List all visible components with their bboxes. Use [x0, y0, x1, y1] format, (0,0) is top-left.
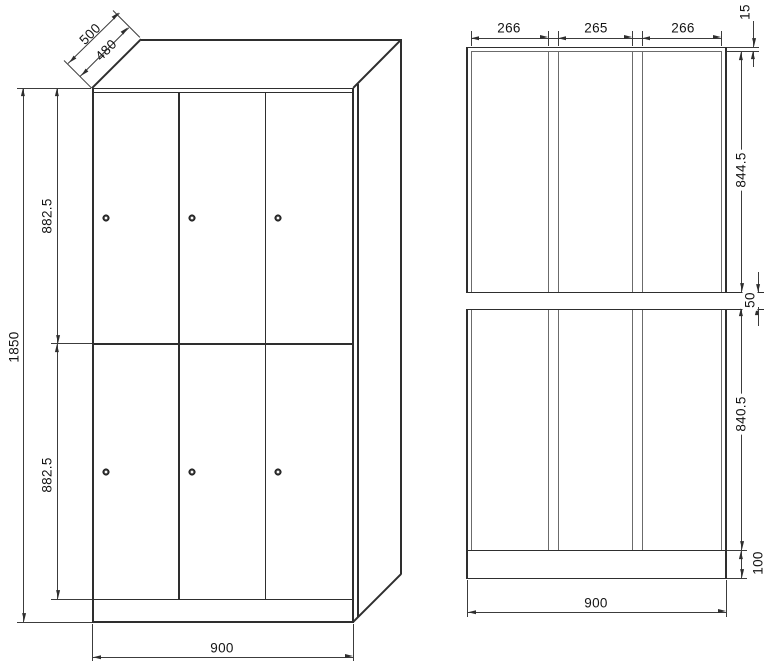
arrowhead — [56, 590, 60, 598]
object-line — [725, 47, 727, 579]
dim-label-height-total: 1850 — [7, 331, 22, 362]
object-line — [352, 39, 401, 89]
arrowhead — [22, 613, 26, 621]
extension-line — [548, 31, 549, 46]
arrowhead — [713, 35, 721, 39]
dim-label-width: 900 — [210, 641, 233, 656]
dim-label-width: 900 — [584, 596, 607, 611]
arrowhead — [718, 609, 726, 613]
arrowhead — [740, 569, 744, 577]
object-line — [400, 39, 402, 574]
extension-line — [727, 47, 759, 48]
technical-drawing: 500 480 1850 882.5 882.5 900 — [0, 0, 776, 672]
arrowhead — [740, 541, 744, 549]
extension-line — [726, 580, 727, 617]
object-line — [352, 573, 401, 622]
object-line — [466, 47, 468, 579]
arrowhead — [468, 611, 476, 615]
arrowhead — [642, 37, 650, 41]
dimension-line — [471, 38, 721, 39]
extension-line — [64, 60, 92, 88]
arrowhead — [750, 51, 754, 59]
object-line — [466, 47, 726, 49]
lock-knob — [188, 214, 196, 222]
dim-label-top-frame: 15 — [738, 4, 753, 20]
dim-label-lower-door: 840.5 — [734, 393, 749, 434]
object-line — [92, 88, 94, 623]
arrowhead — [345, 654, 353, 658]
dim-label-lower-door: 882.5 — [40, 457, 55, 492]
object-line — [92, 621, 353, 623]
extension-line — [632, 31, 633, 46]
arrowhead — [752, 38, 756, 46]
dimension-line — [467, 612, 726, 613]
arrowhead — [540, 35, 548, 39]
arrowhead — [54, 344, 58, 352]
arrowhead — [20, 88, 24, 96]
dim-label-door2-width: 265 — [584, 21, 607, 36]
extension-line — [51, 599, 92, 600]
extension-line — [721, 31, 722, 46]
object-line — [92, 599, 353, 601]
arrowhead — [54, 88, 58, 96]
arrowhead — [738, 52, 742, 60]
lock-knob — [188, 468, 196, 476]
dim-label-door1-width: 266 — [497, 21, 520, 36]
arrowhead — [738, 551, 742, 559]
dim-label-door3-width: 266 — [671, 21, 694, 36]
dim-label-mid-band: 50 — [743, 289, 758, 311]
arrowhead — [471, 37, 479, 41]
arrowhead — [93, 655, 101, 659]
lock-knob — [274, 214, 282, 222]
object-line — [141, 39, 402, 41]
dim-label-plinth: 100 — [751, 551, 766, 574]
lock-knob — [102, 468, 110, 476]
arrowhead — [121, 26, 130, 34]
dimension-line — [23, 88, 24, 623]
extension-line — [727, 550, 747, 551]
extension-line — [353, 624, 354, 661]
object-line — [466, 578, 726, 580]
arrowhead — [558, 37, 566, 41]
shelf-band — [466, 292, 764, 310]
object-line — [471, 51, 722, 52]
lock-knob — [102, 214, 110, 222]
arrowhead — [624, 35, 632, 39]
dim-label-depth-outer: 500 — [76, 20, 103, 47]
dim-label-upper-door: 844.5 — [734, 149, 749, 190]
extension-line — [17, 622, 92, 623]
door-divider-line — [265, 92, 267, 599]
object-line — [357, 84, 359, 617]
lock-knob — [274, 468, 282, 476]
extension-line — [727, 578, 747, 579]
object-line — [92, 88, 353, 90]
object-line — [352, 88, 354, 623]
object-line — [92, 343, 353, 345]
dim-label-upper-door: 882.5 — [40, 198, 55, 233]
arrowhead — [56, 335, 60, 343]
door-divider-line — [178, 92, 180, 599]
object-line — [466, 550, 726, 552]
object-line — [92, 92, 353, 94]
dimension-line — [92, 657, 353, 658]
